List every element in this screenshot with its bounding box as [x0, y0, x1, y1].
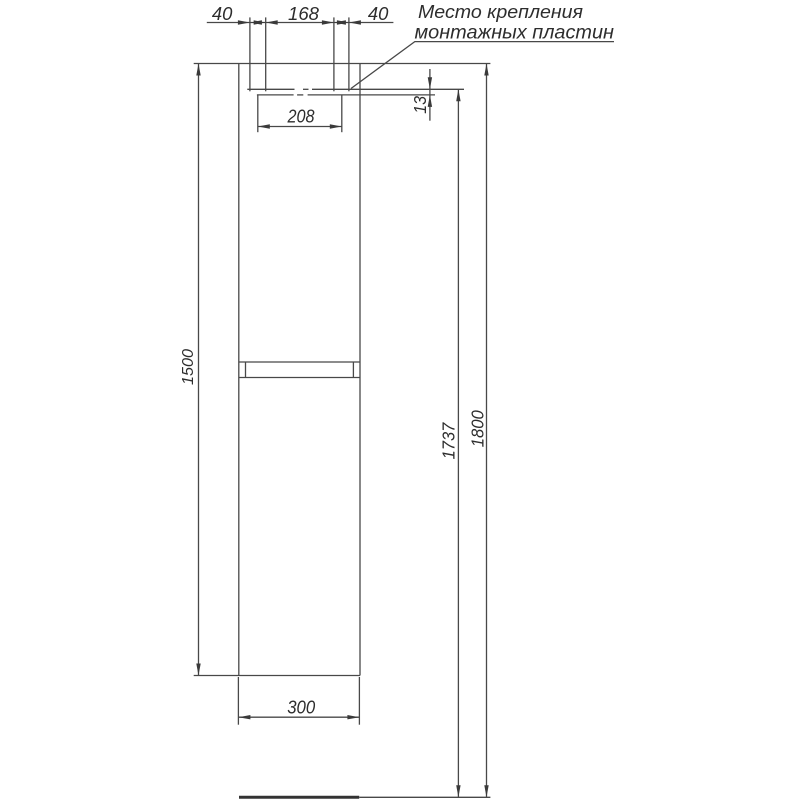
svg-text:40: 40 — [212, 3, 233, 24]
svg-text:208: 208 — [287, 105, 316, 126]
svg-text:40: 40 — [368, 3, 389, 24]
svg-text:монтажных пластин: монтажных пластин — [415, 23, 615, 44]
svg-text:Место крепления: Место крепления — [418, 1, 583, 22]
svg-text:1500: 1500 — [180, 349, 197, 385]
svg-text:1737: 1737 — [439, 422, 459, 460]
svg-text:168: 168 — [288, 3, 320, 24]
svg-text:13: 13 — [410, 96, 430, 114]
svg-text:1800: 1800 — [467, 410, 487, 447]
svg-text:300: 300 — [287, 696, 316, 717]
